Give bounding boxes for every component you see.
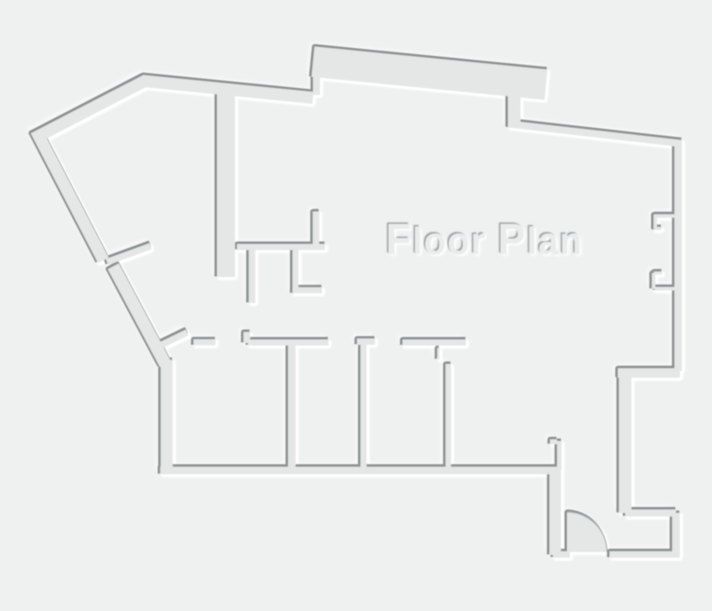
svg-text:Floor Plan: Floor Plan (386, 215, 583, 263)
